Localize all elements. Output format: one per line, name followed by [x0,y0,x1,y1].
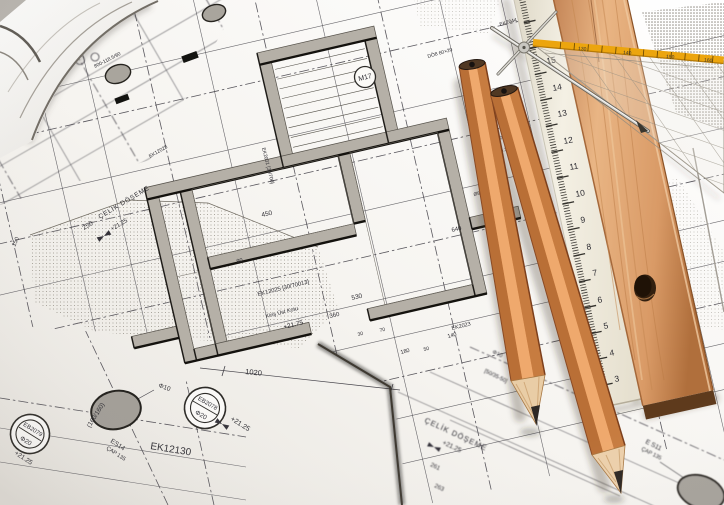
lighting-overlay [0,0,724,505]
photo-canvas: 800-118.5/90 [0,0,724,505]
blueprint-photo: 800-118.5/90 [0,0,724,505]
